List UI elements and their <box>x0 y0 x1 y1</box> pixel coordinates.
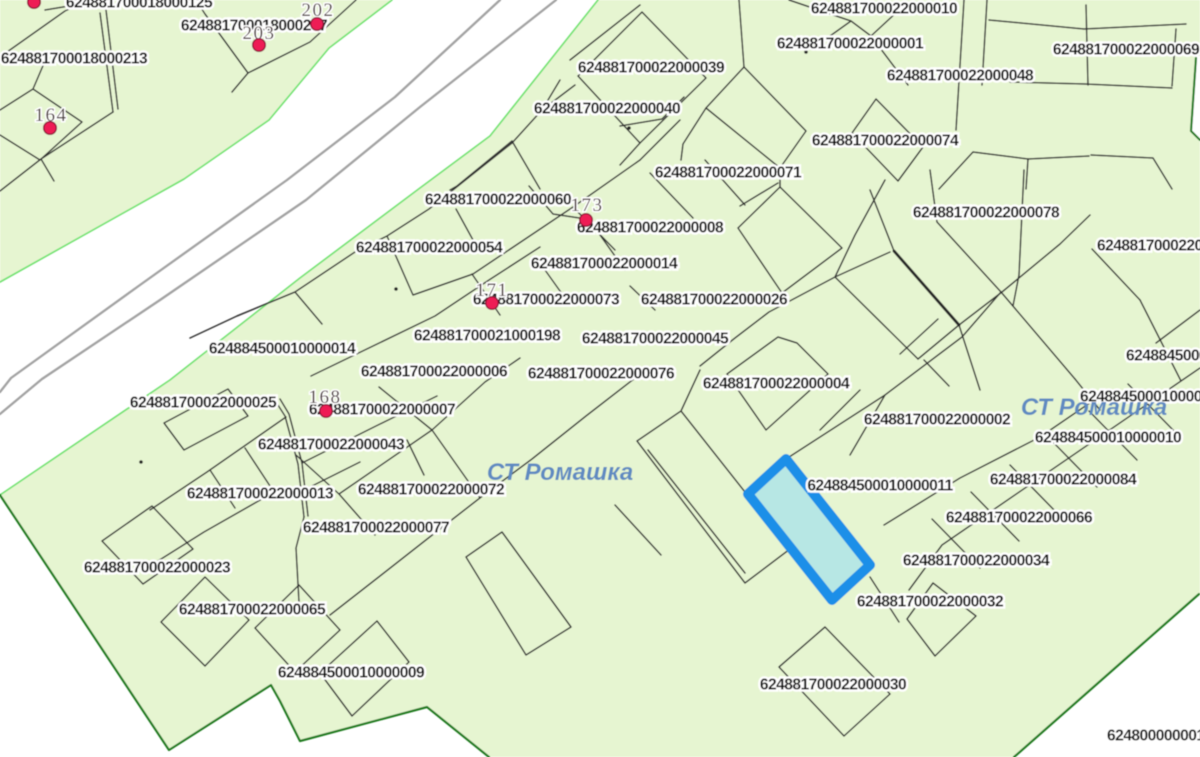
svg-text:624881700022000032: 624881700022000032 <box>857 593 1004 610</box>
svg-text:624881700022000072: 624881700022000072 <box>358 481 505 498</box>
svg-text:624881700022000076: 624881700022000076 <box>528 365 675 382</box>
svg-text:624881700022000002: 624881700022000002 <box>864 411 1011 428</box>
svg-text:624881700022000078: 624881700022000078 <box>913 204 1060 221</box>
svg-text:624881700022000006: 624881700022000006 <box>361 363 508 380</box>
svg-text:624881700022000004: 624881700022000004 <box>703 375 850 392</box>
svg-text:624881700022000045: 624881700022000045 <box>582 330 729 347</box>
svg-text:624800000001: 624800000001 <box>1107 727 1200 744</box>
svg-text:624884500010000011: 624884500010000011 <box>807 477 953 494</box>
svg-text:624881700022000077: 624881700022000077 <box>303 519 449 536</box>
svg-text:624881700022000043: 624881700022000043 <box>258 436 405 453</box>
svg-text:624881700018000125: 624881700018000125 <box>66 0 213 11</box>
svg-text:624881700022000034: 624881700022000034 <box>903 552 1050 569</box>
svg-text:624881700022000055: 624881700022000055 <box>1097 237 1200 254</box>
svg-text:624881700022000013: 624881700022000013 <box>187 485 334 502</box>
svg-text:624881700022000025: 624881700022000025 <box>130 394 277 411</box>
svg-text:624881700022000084: 624881700022000084 <box>990 471 1137 488</box>
svg-text:624884500010000014: 624884500010000014 <box>209 340 356 357</box>
svg-text:624884500010000010: 624884500010000010 <box>1035 429 1182 446</box>
svg-text:624881700022000008: 624881700022000008 <box>577 219 724 236</box>
svg-text:624881700022000065: 624881700022000065 <box>179 601 326 618</box>
svg-text:624881700022000069: 624881700022000069 <box>1053 41 1200 58</box>
svg-text:624881700022000023: 624881700022000023 <box>84 559 231 576</box>
svg-text:624881700021000198: 624881700021000198 <box>414 327 561 344</box>
svg-text:624881700022000040: 624881700022000040 <box>534 100 681 117</box>
svg-text:624881700022000039: 624881700022000039 <box>578 59 725 76</box>
svg-text:624881700022000010: 624881700022000010 <box>811 0 958 17</box>
svg-text:624881700022000026: 624881700022000026 <box>641 291 788 308</box>
svg-text:624881700022000048: 624881700022000048 <box>887 67 1034 84</box>
svg-text:624881700022000014: 624881700022000014 <box>531 255 678 272</box>
svg-text:624881700022000071: 624881700022000071 <box>655 164 802 181</box>
svg-text:173: 173 <box>571 195 604 216</box>
svg-text:624881700022000074: 624881700022000074 <box>812 132 959 149</box>
svg-text:624881700022000066: 624881700022000066 <box>946 509 1093 526</box>
svg-text:624881700022000060: 624881700022000060 <box>425 191 572 208</box>
svg-text:СТ Ромашка: СТ Ромашка <box>1021 394 1167 421</box>
svg-text:624884500010000009: 624884500010000009 <box>278 664 425 681</box>
svg-text:624881700022000030: 624881700022000030 <box>760 676 907 693</box>
svg-text:62488450001000: 62488450001000 <box>1126 347 1200 364</box>
svg-text:624881700018000213: 624881700018000213 <box>1 50 148 67</box>
svg-text:СТ Ромашка: СТ Ромашка <box>487 459 633 486</box>
svg-text:624881700022000001: 624881700022000001 <box>777 35 924 52</box>
svg-text:624881700022000054: 624881700022000054 <box>356 239 503 256</box>
